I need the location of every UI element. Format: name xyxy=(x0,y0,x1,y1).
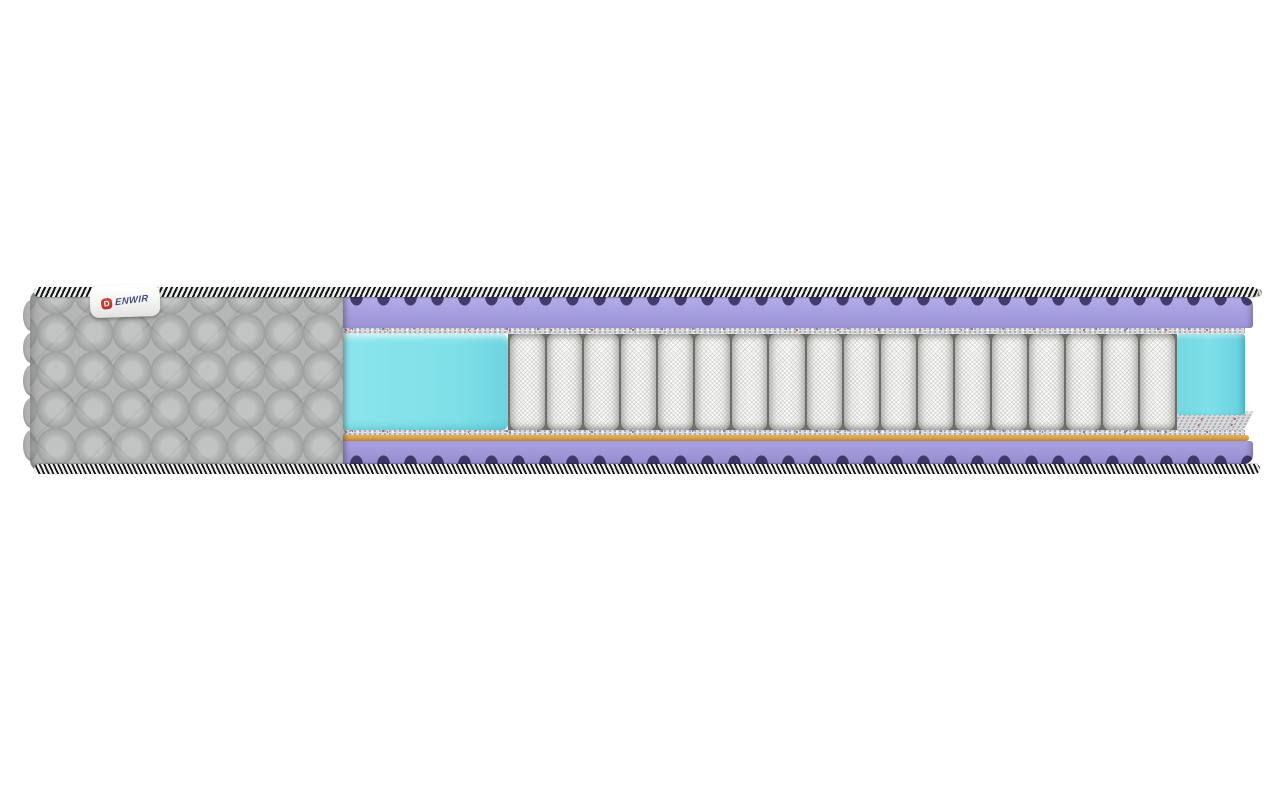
pocket-spring xyxy=(992,334,1027,430)
border-braid-bottom xyxy=(34,464,1260,474)
pocket-spring xyxy=(807,334,842,430)
border-braid-top xyxy=(34,287,1258,297)
pocket-spring xyxy=(621,334,656,430)
brand-label: D ENWIR xyxy=(89,284,160,318)
pocket-spring xyxy=(955,334,990,430)
pocket-spring xyxy=(547,334,582,430)
pocket-spring xyxy=(1140,334,1175,430)
brand-name-text: ENWIR xyxy=(115,293,149,308)
edge-support-foam-left xyxy=(343,334,508,430)
mattress: D ENWIR xyxy=(30,287,1258,474)
brand-logo-icon: D xyxy=(101,297,113,309)
pocket-spring xyxy=(695,334,730,430)
product-photo-background: D ENWIR xyxy=(0,0,1280,800)
brand-label-content: D ENWIR xyxy=(101,293,150,310)
pocket-springs-row xyxy=(508,334,1177,430)
pocket-spring xyxy=(584,334,619,430)
wave-foam-bottom-layer xyxy=(343,441,1253,464)
quilted-cover xyxy=(30,289,343,472)
pocket-spring xyxy=(844,334,879,430)
pocket-spring xyxy=(732,334,767,430)
pocket-spring xyxy=(658,334,693,430)
pocket-spring xyxy=(510,334,545,430)
pocket-spring xyxy=(1103,334,1138,430)
spring-core xyxy=(343,334,1245,430)
pocket-spring xyxy=(918,334,953,430)
pocket-spring xyxy=(769,334,804,430)
pocket-spring xyxy=(881,334,916,430)
pocket-spring xyxy=(1029,334,1064,430)
cross-section xyxy=(343,287,1253,474)
pocket-spring xyxy=(1066,334,1101,430)
edge-support-foam-right xyxy=(1177,334,1245,415)
wave-foam-top-layer xyxy=(343,297,1253,328)
